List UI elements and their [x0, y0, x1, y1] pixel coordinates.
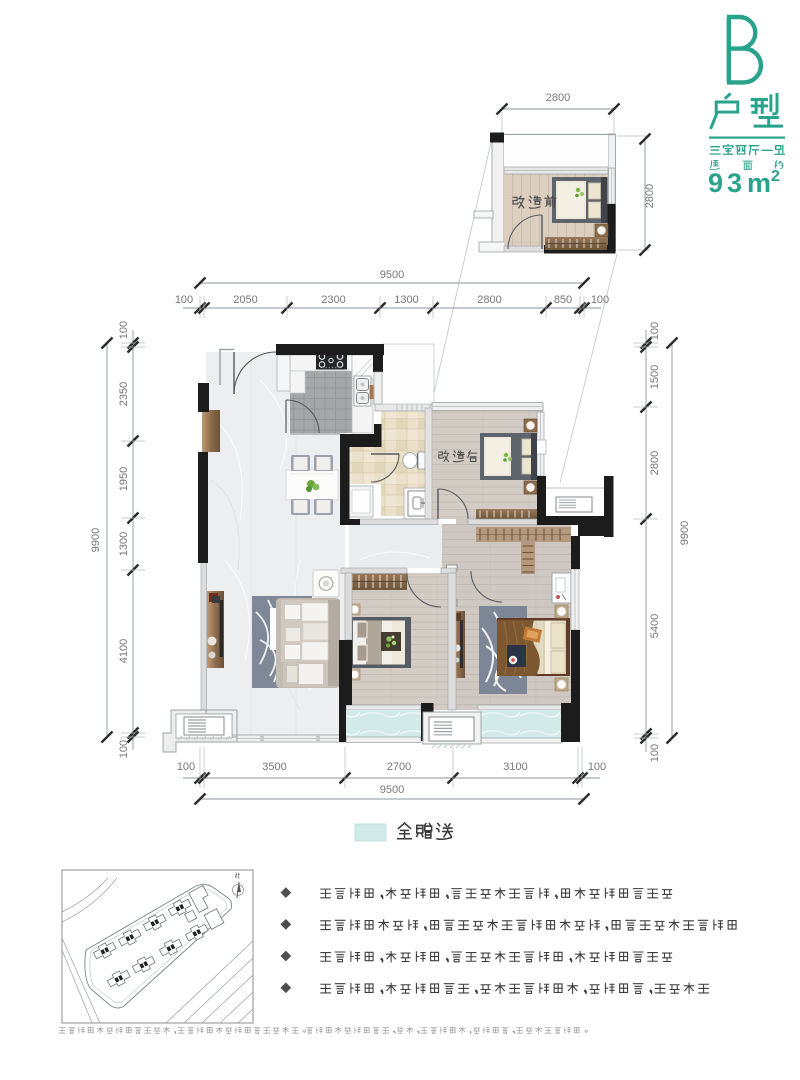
svg-text:2300: 2300 [321, 294, 345, 306]
svg-text:2350: 2350 [118, 382, 130, 406]
svg-text:4100: 4100 [118, 639, 130, 663]
svg-text:1950: 1950 [118, 467, 130, 491]
svg-text:2800: 2800 [649, 451, 661, 475]
svg-text:1300: 1300 [118, 532, 130, 556]
svg-text:1300: 1300 [394, 294, 418, 306]
svg-text:2700: 2700 [387, 761, 411, 773]
svg-text:9500: 9500 [380, 784, 404, 796]
svg-text:100: 100 [591, 294, 609, 306]
svg-text:100: 100 [177, 761, 195, 773]
svg-text:100: 100 [175, 294, 193, 306]
svg-text:2800: 2800 [477, 294, 501, 306]
svg-text:9900: 9900 [679, 521, 691, 545]
svg-text:100: 100 [649, 322, 661, 340]
svg-text:9500: 9500 [380, 269, 404, 281]
svg-text:2: 2 [771, 168, 780, 185]
svg-text:100: 100 [588, 761, 606, 773]
svg-text:100: 100 [118, 740, 130, 758]
svg-text:3100: 3100 [503, 761, 527, 773]
svg-text:100: 100 [649, 744, 661, 762]
svg-text:3500: 3500 [262, 761, 286, 773]
svg-text:5400: 5400 [649, 614, 661, 638]
svg-text:m: m [747, 168, 771, 198]
svg-text:100: 100 [118, 321, 130, 339]
svg-text:850: 850 [554, 294, 572, 306]
svg-text:2800: 2800 [546, 92, 570, 104]
svg-text:2800: 2800 [644, 184, 656, 208]
svg-text:9: 9 [708, 168, 723, 198]
svg-text:3: 3 [727, 168, 742, 198]
svg-text:9900: 9900 [90, 528, 102, 552]
svg-text:1500: 1500 [649, 365, 661, 389]
svg-text:2050: 2050 [233, 294, 257, 306]
